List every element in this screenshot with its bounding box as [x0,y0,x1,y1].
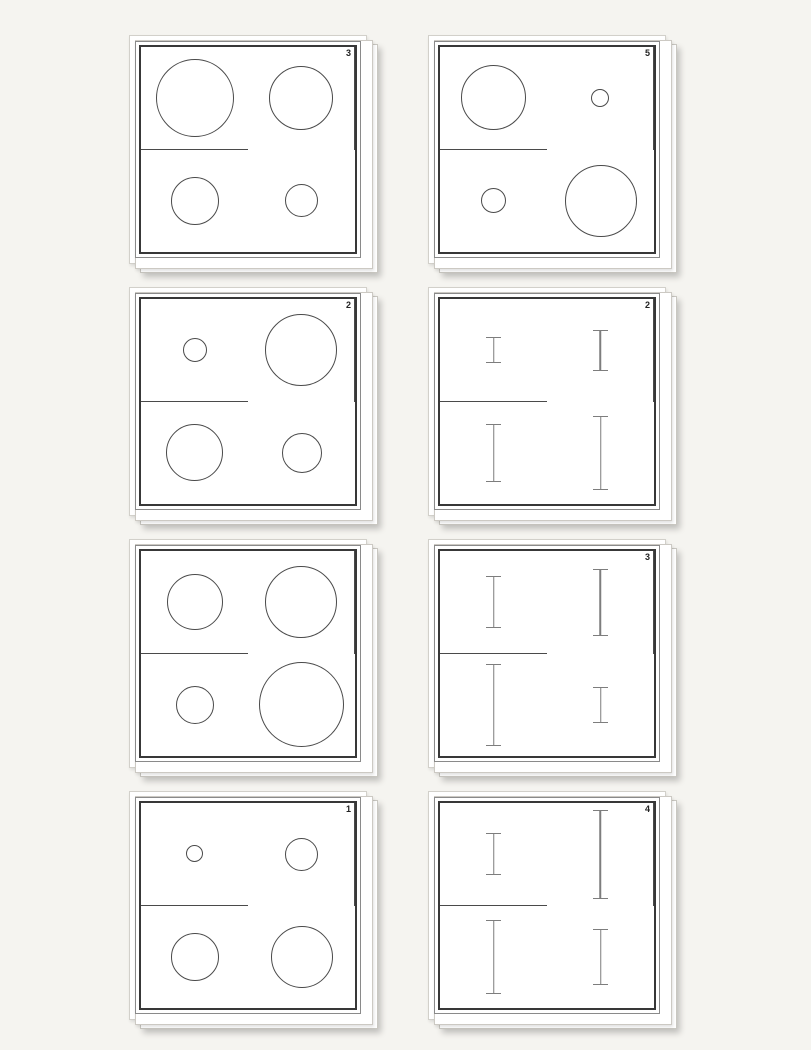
card-inner-frame: 4 [438,801,656,1010]
ibeam-shape [593,687,608,723]
card-cell [141,47,248,150]
card-cell [248,906,355,1009]
card-cell [440,402,547,505]
card-cell [547,47,654,150]
card-cell [248,299,355,402]
card-inner-frame: 2 [438,297,656,506]
ibeam-shape [486,337,501,363]
circle-shape [265,314,337,386]
card-inner-frame [139,549,357,758]
stimulus-card [129,539,367,768]
circle-shape [176,686,214,724]
card-cell [141,551,248,654]
card-inner-frame: 3 [139,45,357,254]
ibeam-shape [486,664,501,746]
card-cell [141,654,248,757]
card-inner-frame: 1 [139,801,357,1010]
ibeam-shape [593,569,608,636]
card-cell [547,150,654,253]
circle-shape [285,184,318,217]
circle-shape [156,59,234,137]
card-number: 3 [346,48,351,59]
card-outer-frame: 1 [135,797,361,1014]
card-cell [248,803,355,906]
card-outer-frame: 3 [434,545,660,762]
card-cell [440,654,547,757]
stimulus-card: 2 [129,287,367,516]
ibeam-shape [486,576,501,628]
card-inner-frame: 5 [438,45,656,254]
card-cell [547,906,654,1009]
card-cell [440,150,547,253]
circle-shape [167,574,223,630]
card-cell [248,402,355,505]
card-outer-frame: 2 [135,293,361,510]
card-cell [440,906,547,1009]
circle-shape [166,424,223,481]
worksheet-page: 3 5 2 [0,0,811,1050]
circle-shape [461,65,526,130]
card-number: 5 [645,48,650,59]
circle-shape [259,662,344,747]
card-number: 3 [645,552,650,563]
card-cell [248,47,355,150]
ibeam-shape [593,416,608,490]
card-outer-frame: 2 [434,293,660,510]
card-outer-frame: 5 [434,41,660,258]
card-cell [440,47,547,150]
card-inner-frame: 2 [139,297,357,506]
stimulus-card: 1 [129,791,367,1020]
circle-shape [285,838,318,871]
card-cell [141,299,248,402]
circle-shape [265,566,337,638]
stimulus-card: 4 [428,791,666,1020]
card-cell [547,654,654,757]
card-number: 4 [645,804,650,815]
circle-shape [183,338,207,362]
card-cell [248,654,355,757]
card-cell [547,551,654,654]
card-cell [141,402,248,505]
circle-shape [269,66,333,130]
stimulus-card: 3 [428,539,666,768]
card-cell [440,551,547,654]
card-cell [547,803,654,906]
ibeam-shape [593,330,608,371]
card-number: 2 [346,300,351,311]
ibeam-shape [486,424,501,482]
card-outer-frame [135,545,361,762]
card-cell [547,299,654,402]
circle-shape [186,845,203,862]
ibeam-shape [486,920,501,994]
circle-shape [171,933,219,981]
circle-shape [591,89,609,107]
card-cell [547,402,654,505]
stimulus-card: 2 [428,287,666,516]
card-cell [440,803,547,906]
ibeam-shape [593,810,608,899]
card-cell [248,150,355,253]
stimulus-card: 3 [129,35,367,264]
ibeam-shape [486,833,501,875]
card-cell [141,803,248,906]
card-cell [141,150,248,253]
card-cell [440,299,547,402]
circle-shape [171,177,219,225]
card-number: 2 [645,300,650,311]
circle-shape [282,433,322,473]
circle-shape [565,165,637,237]
cards-grid: 3 5 2 [129,35,664,1020]
card-outer-frame: 3 [135,41,361,258]
card-cell [248,551,355,654]
ibeam-shape [593,929,608,985]
card-outer-frame: 4 [434,797,660,1014]
stimulus-card: 5 [428,35,666,264]
card-inner-frame: 3 [438,549,656,758]
circle-shape [481,188,506,213]
card-number: 1 [346,804,351,815]
card-cell [141,906,248,1009]
circle-shape [271,926,333,988]
